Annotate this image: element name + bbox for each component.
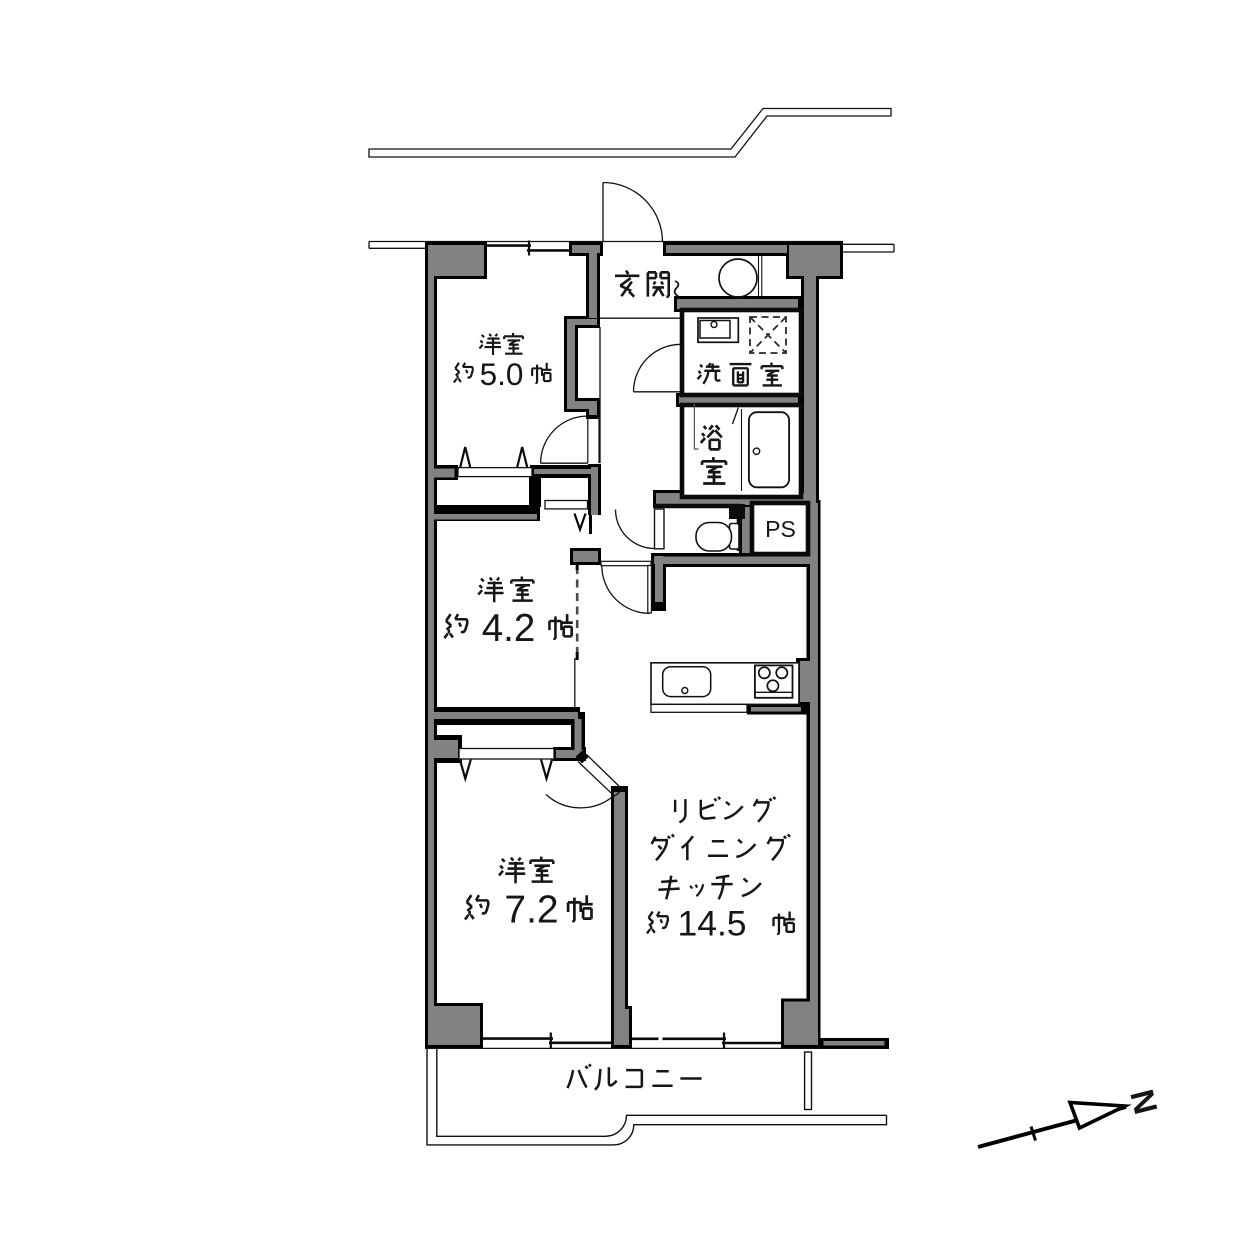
svg-text:4.2: 4.2 — [482, 607, 536, 650]
svg-text:14.5: 14.5 — [677, 904, 746, 944]
svg-text:5.0: 5.0 — [480, 356, 524, 392]
svg-text:PS: PS — [765, 516, 796, 542]
svg-text:7.2: 7.2 — [504, 889, 558, 932]
